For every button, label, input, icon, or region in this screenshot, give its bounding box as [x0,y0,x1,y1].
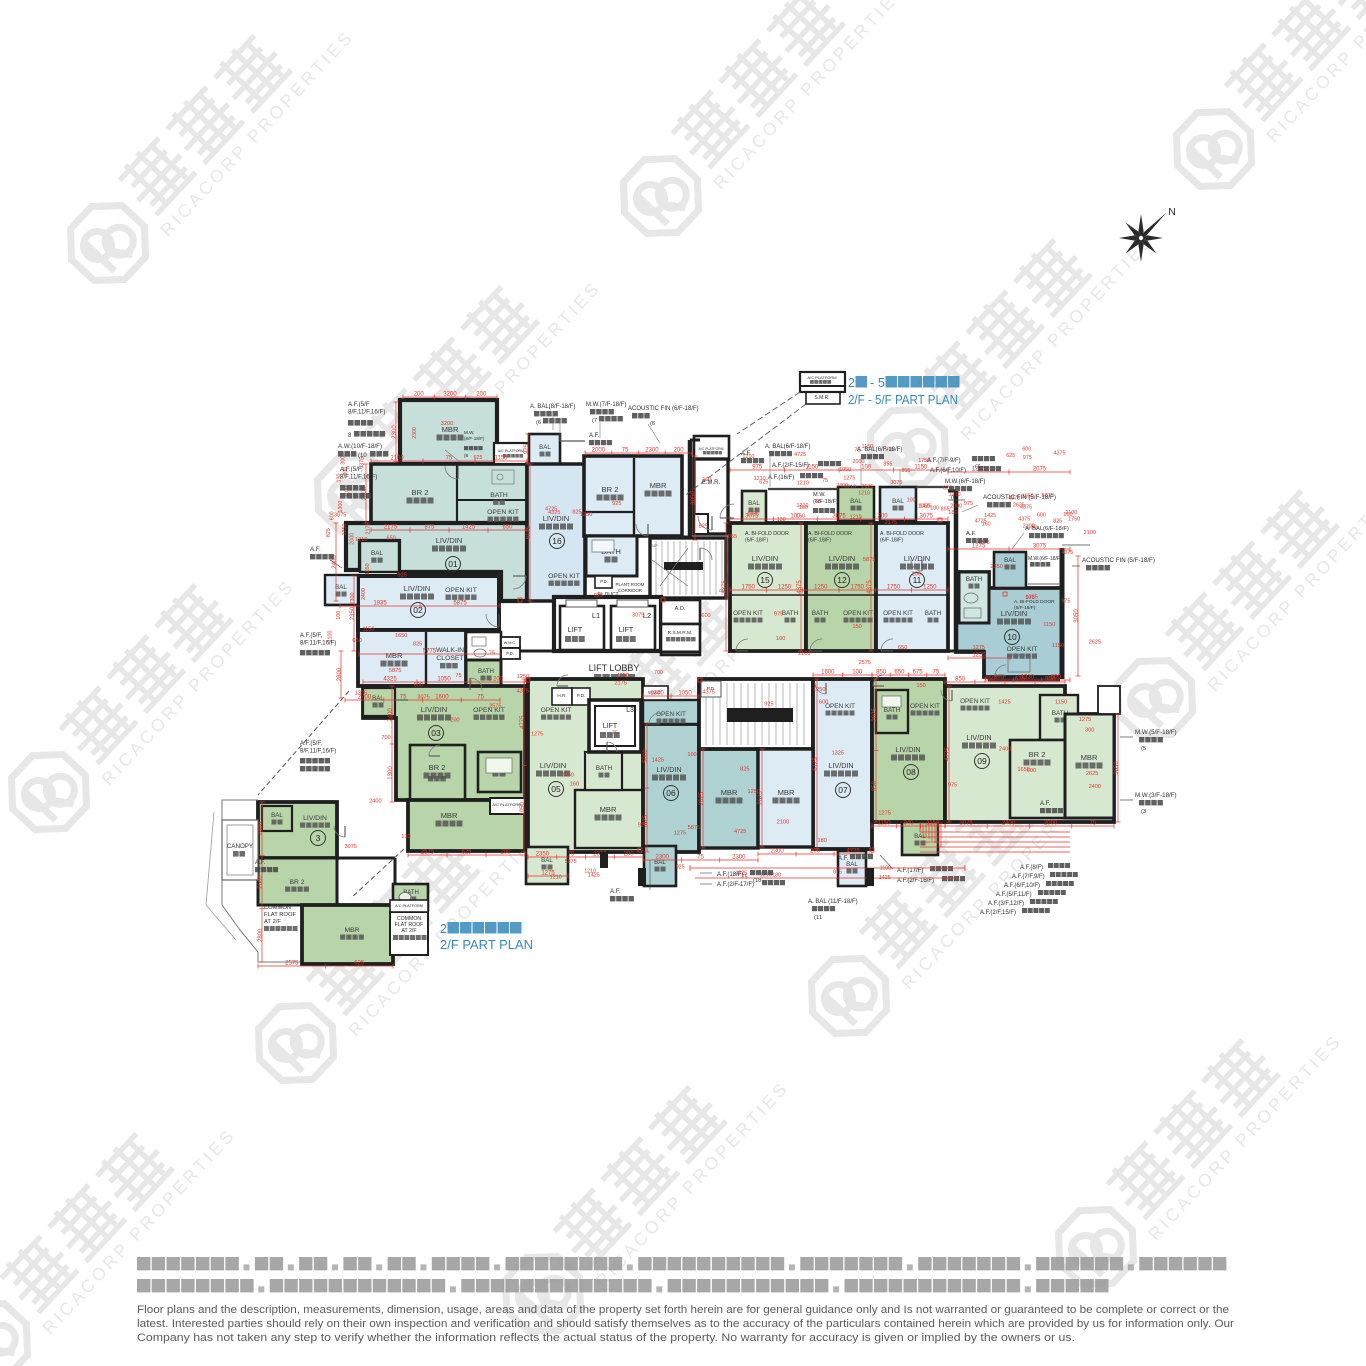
svg-text:2400: 2400 [369,799,381,805]
svg-text:975: 975 [774,612,783,618]
svg-text:2000: 2000 [1044,821,1058,827]
svg-text:A. BAL(8/F-18/F): A. BAL(8/F-18/F) [530,404,575,410]
svg-text:A.F.: A.F. [966,531,976,537]
svg-text:1325: 1325 [355,690,367,696]
svg-text:2575: 2575 [285,961,299,967]
svg-text:2625: 2625 [1086,771,1098,777]
svg-text:A.F.(2/F-17/F): A.F.(2/F-17/F) [717,882,754,888]
svg-text:BAL: BAL [892,498,904,505]
svg-text:CORRIDOR: CORRIDOR [618,588,642,593]
svg-text:UP: UP [652,544,658,548]
svg-text:200: 200 [500,850,511,856]
svg-text:1210: 1210 [850,515,862,521]
svg-text:850: 850 [872,781,878,792]
svg-text:130: 130 [401,834,410,840]
svg-text:3075: 3075 [832,514,846,520]
svg-text:BAL: BAL [914,833,926,840]
svg-text:A. BAL (11/F-18/F): A. BAL (11/F-18/F) [808,899,858,905]
svg-text:855: 855 [883,462,892,468]
svg-text:2000: 2000 [592,448,606,454]
svg-text:N: N [1168,206,1176,218]
svg-text:A.F.: A.F. [741,451,752,457]
svg-text:5775: 5775 [423,649,437,655]
svg-text:08: 08 [906,767,916,777]
svg-text:OPEN KIT: OPEN KIT [843,610,873,617]
svg-text:650: 650 [352,638,361,644]
svg-text:P.D.: P.D. [506,651,514,656]
svg-text:1275: 1275 [843,475,855,481]
svg-text:LIV/DIN: LIV/DIN [421,705,448,714]
svg-text:1275: 1275 [972,645,984,651]
svg-text:MBR: MBR [650,481,667,490]
svg-text:AT 2/F: AT 2/F [264,919,281,925]
svg-text:75: 75 [446,456,453,462]
svg-text:2625: 2625 [1089,640,1101,646]
svg-text:LIV/DIN: LIV/DIN [904,554,931,563]
svg-text:2: 2 [440,922,447,936]
svg-text:925: 925 [638,822,647,828]
svg-text:A.F.(8/F): A.F.(8/F) [1020,865,1043,871]
svg-text:650: 650 [985,677,996,683]
svg-text:(6/F-18/F): (6/F-18/F) [745,538,768,544]
svg-text:BATH: BATH [925,610,942,617]
svg-text:75: 75 [622,448,629,454]
svg-text:160: 160 [570,782,579,788]
svg-text:2625: 2625 [872,707,878,721]
svg-text:P.D.: P.D. [577,693,585,698]
svg-text:2/F PART PLAN: 2/F PART PLAN [440,938,533,952]
svg-text:(6/F-18/F): (6/F-18/F) [808,538,831,544]
svg-text:2100: 2100 [390,456,404,462]
svg-text:3075: 3075 [632,613,644,619]
svg-text:1050: 1050 [437,677,451,683]
svg-text:2600: 2600 [258,875,264,889]
svg-text:BR 2: BR 2 [412,488,429,497]
svg-text:1750: 1750 [851,585,865,591]
svg-text:6125: 6125 [813,757,819,771]
svg-text:A.F.(16/F): A.F.(16/F) [768,475,794,481]
svg-text:2300: 2300 [350,593,356,605]
svg-text:825: 825 [326,528,332,537]
svg-text:3075: 3075 [920,514,934,520]
svg-text:H.R.: H.R. [557,693,566,698]
svg-text:2575: 2575 [421,850,435,856]
svg-text:1210: 1210 [754,476,766,482]
svg-text:100: 100 [930,505,939,511]
svg-text:A.F.: A.F. [255,860,266,866]
svg-text:2000: 2000 [350,533,356,545]
svg-text:2300: 2300 [392,425,398,439]
svg-text:2400: 2400 [258,821,264,835]
svg-text:3: 3 [316,833,321,843]
svg-text:1275: 1275 [1079,717,1091,723]
svg-text:2100: 2100 [1065,510,1077,516]
svg-text:2300: 2300 [732,855,746,861]
svg-text:1275: 1275 [674,831,686,837]
svg-text:1275: 1275 [531,732,543,738]
svg-text:A/C PLATFORM: A/C PLATFORM [498,449,524,453]
svg-text:2800: 2800 [258,928,264,942]
svg-text:75: 75 [697,855,704,861]
svg-text:3050: 3050 [1074,609,1080,623]
svg-text:925: 925 [398,573,407,579]
svg-text:1250: 1250 [778,585,792,591]
svg-text:L3: L3 [626,707,634,714]
svg-text:A.F.(5/F,: A.F.(5/F, [300,633,322,639]
svg-text:975: 975 [994,675,1005,681]
svg-text:4725: 4725 [846,849,860,855]
svg-text:925: 925 [764,702,773,708]
svg-text:2100: 2100 [777,819,789,825]
svg-text:BATH: BATH [782,610,799,617]
svg-text:BAL: BAL [1004,557,1016,564]
svg-text:675: 675 [913,670,924,676]
svg-text:M.W.: M.W. [464,430,474,435]
svg-text:1050: 1050 [678,691,692,697]
svg-text:4725: 4725 [794,452,806,458]
svg-text:BR 2: BR 2 [602,485,619,494]
svg-text:3075: 3075 [345,844,357,850]
svg-text:2350: 2350 [350,606,356,620]
svg-text:LIFT LOBBY: LIFT LOBBY [589,663,640,673]
svg-text:BAL: BAL [846,861,858,868]
svg-text:1250: 1250 [923,585,937,591]
svg-text:1150: 1150 [914,465,928,471]
svg-text:M.W.(7/F-18/F): M.W.(7/F-18/F) [586,402,626,408]
svg-text:4375: 4375 [1061,550,1073,556]
svg-text:4325: 4325 [383,677,397,683]
svg-text:LIFT: LIFT [603,723,618,730]
svg-text:A.F.(5/F,: A.F.(5/F, [340,466,363,473]
svg-text:200: 200 [624,852,635,858]
svg-text:2000: 2000 [950,503,962,509]
svg-text:75: 75 [455,673,461,679]
svg-text:BAL: BAL [748,500,760,507]
svg-text:100: 100 [776,636,785,642]
svg-text:200: 200 [450,718,459,724]
svg-text:ACOUSTIC FIN (6/F-18/F): ACOUSTIC FIN (6/F-18/F) [628,406,699,412]
svg-text:2350: 2350 [536,852,550,858]
svg-text:1250: 1250 [580,512,592,518]
svg-text:latest. Interested parties sho: latest. Interested parties should rely o… [137,1318,1234,1330]
svg-text:2175: 2175 [614,680,626,686]
svg-text:A. BI-FOLD DOOR: A. BI-FOLD DOOR [808,531,852,537]
svg-text:1210: 1210 [355,537,367,543]
svg-text:BR 2: BR 2 [1029,750,1046,759]
svg-text:1325: 1325 [747,512,759,518]
svg-text:2575: 2575 [489,704,501,710]
svg-text:(6/F-18/F): (6/F-18/F) [1014,605,1036,611]
svg-text:WALK-IN: WALK-IN [436,647,464,654]
svg-text:(5: (5 [1141,746,1146,752]
svg-text:950: 950 [1045,677,1056,683]
svg-text:975: 975 [948,782,957,788]
svg-text:625: 625 [1006,453,1015,459]
svg-text:75: 75 [568,852,575,858]
svg-text:6125: 6125 [526,525,532,539]
svg-text:3075: 3075 [959,821,973,827]
svg-text:LIV/DIN: LIV/DIN [828,761,853,770]
svg-text:160: 160 [796,514,805,520]
svg-text:A.F.(2/F-16/F): A.F.(2/F-16/F) [897,878,934,884]
svg-text:A.F.(17/F): A.F.(17/F) [897,868,923,874]
svg-text:MBR: MBR [778,788,795,797]
svg-text:MBR: MBR [386,651,403,660]
svg-text:R.S.M.R.M.: R.S.M.R.M. [668,630,693,636]
svg-text:(10: (10 [358,453,367,459]
svg-text:ACOUSTIC FIN (5/F-18/F): ACOUSTIC FIN (5/F-18/F) [983,494,1056,501]
svg-text:1250: 1250 [342,524,348,536]
svg-text:LIV/DIN: LIV/DIN [829,554,856,563]
svg-text:4775: 4775 [520,715,526,729]
svg-text:OPEN KIT: OPEN KIT [910,703,940,710]
svg-text:MBR: MBR [600,805,617,814]
svg-text:75: 75 [477,695,484,701]
svg-text:975: 975 [1023,455,1032,461]
svg-text:LIV/DIN: LIV/DIN [540,761,567,770]
svg-text:A.F.(7/F-9/F): A.F.(7/F-9/F) [927,458,961,464]
svg-text:3075: 3075 [890,480,902,486]
svg-text:A.F.(3/F,12/F): A.F.(3/F,12/F) [988,901,1024,907]
svg-text:180: 180 [948,510,957,516]
svg-text:MBR: MBR [1081,753,1098,762]
svg-text:A. BAL(6/F-18/F): A. BAL(6/F-18/F) [857,447,902,453]
svg-text:1050: 1050 [839,467,851,473]
svg-text:5: 5 [878,376,885,390]
svg-text:200: 200 [493,677,504,683]
svg-text:940: 940 [903,821,914,827]
svg-text:1210: 1210 [550,875,562,881]
svg-text:16: 16 [552,536,562,546]
svg-text:150: 150 [852,624,861,630]
svg-text:2350: 2350 [990,564,1002,570]
svg-text:1250: 1250 [814,585,828,591]
svg-text:M.W.(6/F-18/F): M.W.(6/F-18/F) [1028,556,1062,562]
svg-text:625: 625 [354,961,365,967]
svg-text:A.F.(5/F,11/F): A.F.(5/F,11/F) [996,892,1032,898]
svg-text:8/F,11/F,16/F): 8/F,11/F,16/F) [300,748,336,754]
svg-text:2800: 2800 [337,667,343,681]
svg-text:A. BI-FOLD DOOR: A. BI-FOLD DOOR [880,531,924,537]
svg-text:A.F.(6/F,10/F): A.F.(6/F,10/F) [930,468,966,474]
svg-text:875: 875 [424,525,435,531]
svg-text:1150: 1150 [1052,643,1064,649]
svg-text:2175: 2175 [885,520,897,526]
svg-text:650: 650 [894,670,905,676]
svg-text:8/F,11/F,16/F): 8/F,11/F,16/F) [300,640,336,646]
svg-text:A/C PLATFORM: A/C PLATFORM [492,802,521,807]
svg-text:75: 75 [933,670,940,676]
svg-text:1150: 1150 [495,456,509,462]
svg-text:OPEN KIT: OPEN KIT [1007,646,1038,653]
svg-text:A.W.(10/F-18/F): A.W.(10/F-18/F) [338,443,382,450]
svg-text:(6: (6 [650,421,655,427]
svg-text:2175: 2175 [384,525,398,531]
svg-text:2400: 2400 [361,588,367,600]
svg-text:2575: 2575 [859,660,871,666]
svg-text:PLANT ROOM: PLANT ROOM [616,582,645,587]
svg-text:09: 09 [977,756,987,766]
svg-text:825: 825 [572,509,581,515]
svg-text:2400: 2400 [1002,821,1016,827]
svg-text:1050: 1050 [365,563,371,575]
svg-text:AT 2/F: AT 2/F [401,928,416,934]
svg-text:OPEN KIT: OPEN KIT [548,573,580,580]
svg-text:1275: 1275 [878,810,890,816]
svg-text:1225: 1225 [972,653,986,659]
svg-text:150: 150 [916,683,925,689]
svg-text:4325: 4325 [548,510,560,516]
svg-text:1600: 1600 [435,695,449,701]
svg-text:925: 925 [524,443,530,454]
svg-text:1250: 1250 [747,789,759,795]
svg-text:S.M.R.: S.M.R. [814,395,829,401]
svg-text:A.F.: A.F. [589,433,600,439]
svg-text:2300: 2300 [656,855,670,861]
svg-text:4375: 4375 [722,580,728,594]
svg-text:OPEN KIT: OPEN KIT [733,610,763,617]
svg-text:OPEN KIT: OPEN KIT [541,707,572,714]
svg-text:2625: 2625 [1013,503,1025,509]
svg-text:A.F.: A.F. [610,888,621,895]
svg-text:850: 850 [876,670,887,676]
svg-text:LIV/DIN: LIV/DIN [436,536,463,545]
svg-text:4375: 4375 [867,580,873,594]
svg-text:05: 05 [551,784,561,794]
svg-text:A.F.(2/F-15/F): A.F.(2/F-15/F) [772,463,809,469]
svg-text:A.D.: A.D. [675,606,686,612]
svg-text:200: 200 [476,392,487,398]
svg-text:BATH: BATH [966,576,983,583]
svg-text:100: 100 [907,497,916,503]
svg-text:2625: 2625 [861,484,873,490]
svg-text:LIV/DIN: LIV/DIN [656,765,681,774]
svg-text:M.W.(3/F-18/F): M.W.(3/F-18/F) [1135,792,1177,799]
svg-text:M.W.(6/F-18/F): M.W.(6/F-18/F) [945,479,985,485]
svg-text:BAL: BAL [539,444,551,451]
svg-text:A.F.(18/F): A.F.(18/F) [717,872,743,878]
svg-text:A.F.: A.F. [1040,801,1051,807]
svg-text:Floor plans and the descriptio: Floor plans and the description, measure… [137,1304,1229,1316]
svg-text:BATH: BATH [884,707,901,714]
svg-text:5875: 5875 [453,601,467,607]
svg-text:4375: 4375 [797,580,803,594]
svg-text:600: 600 [1027,768,1036,774]
svg-text:855: 855 [941,506,950,512]
svg-text:M.W.(5/F-18/F): M.W.(5/F-18/F) [1135,729,1177,736]
svg-text:600: 600 [701,613,710,619]
svg-text:1325: 1325 [1025,594,1037,600]
svg-text:2000: 2000 [853,459,865,465]
svg-text:1835: 1835 [373,601,387,607]
svg-text:MBR: MBR [344,927,359,934]
svg-text:BATH: BATH [812,610,829,617]
svg-text:(3: (3 [1141,809,1146,815]
svg-text:855: 855 [901,468,910,474]
svg-text:2: 2 [848,376,855,390]
svg-text:1325: 1325 [832,751,844,757]
svg-text:OPEN KIT: OPEN KIT [656,711,686,718]
svg-text:07: 07 [838,785,848,795]
svg-text:A.F.(5/F,: A.F.(5/F, [300,741,322,747]
svg-text:OPEN KIT: OPEN KIT [487,509,519,516]
svg-text:975: 975 [1061,599,1070,605]
svg-text:2300: 2300 [412,427,418,439]
svg-text:BAL: BAL [371,550,384,557]
svg-text:925: 925 [594,593,603,599]
svg-text:600: 600 [1022,447,1031,453]
svg-text:3650: 3650 [1114,761,1120,775]
svg-text:BAL: BAL [271,812,283,819]
svg-text:A.F.(7/F,9/F): A.F.(7/F,9/F) [1012,874,1045,880]
svg-text:100: 100 [852,670,863,676]
svg-text:4375: 4375 [1018,516,1030,522]
svg-text:(8: (8 [464,453,469,458]
svg-text:A.F.(6/F,10/F): A.F.(6/F,10/F) [1004,883,1040,889]
svg-text:2300: 2300 [645,448,659,454]
svg-text:A.F.(2/F,15/F): A.F.(2/F,15/F) [980,910,1016,916]
svg-text:1425: 1425 [462,525,476,531]
svg-text:BATH: BATH [478,668,494,675]
svg-text:850: 850 [955,677,966,683]
svg-text:BAL: BAL [541,857,553,864]
svg-text:75: 75 [489,651,495,657]
svg-text:75: 75 [612,731,618,737]
svg-text:BR 2: BR 2 [429,763,446,772]
svg-text:825: 825 [699,523,708,529]
svg-text:1150: 1150 [617,673,629,679]
svg-text:825: 825 [1053,519,1062,525]
svg-text:650: 650 [387,536,396,542]
svg-text:MBR: MBR [441,811,458,820]
svg-text:12: 12 [837,575,847,585]
svg-text:(6/F-18/F): (6/F-18/F) [880,538,903,544]
svg-text:1050: 1050 [562,773,574,779]
svg-text:100: 100 [687,752,696,758]
svg-text:BATH: BATH [490,492,508,499]
svg-text:CANOPY: CANOPY [227,843,253,850]
svg-text:2625: 2625 [699,791,705,805]
svg-text:1300: 1300 [650,691,664,697]
svg-text:600: 600 [1037,513,1046,519]
svg-text:COMMON: COMMON [264,905,291,911]
svg-text:180: 180 [772,872,781,878]
svg-text:975: 975 [964,501,973,507]
svg-text:5875: 5875 [863,557,875,563]
svg-text:5875: 5875 [565,859,577,865]
svg-text:1150: 1150 [1055,700,1067,706]
svg-text:OPEN KIT: OPEN KIT [825,703,855,710]
svg-text:03: 03 [431,728,441,738]
svg-text:300: 300 [340,456,346,465]
svg-text:1650: 1650 [395,633,407,639]
svg-text:1150: 1150 [362,627,374,633]
svg-text:LIV/DIN: LIV/DIN [752,554,779,563]
svg-text:A. BI-FOLD DOOR: A. BI-FOLD DOOR [745,531,789,537]
svg-text:L1: L1 [592,611,600,620]
svg-text:10: 10 [1007,632,1017,642]
svg-text:2400: 2400 [999,746,1011,752]
svg-text:LIV/DIN: LIV/DIN [303,815,327,822]
svg-text:02: 02 [413,605,423,615]
svg-text:3075: 3075 [417,694,429,700]
svg-text:600: 600 [414,682,423,688]
svg-text:W.M.C.: W.M.C. [504,641,516,645]
svg-text:100: 100 [912,572,921,578]
svg-text:5875: 5875 [688,825,700,831]
svg-text:975: 975 [833,870,842,876]
svg-text:1150: 1150 [878,821,892,827]
